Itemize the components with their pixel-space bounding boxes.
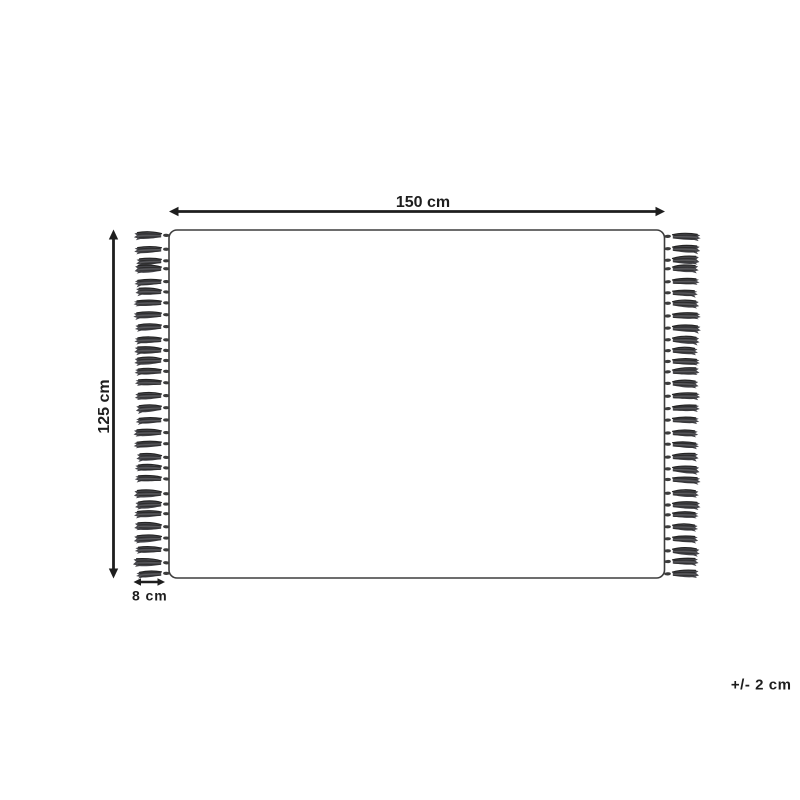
svg-text:+/- 2 cm: +/- 2 cm [731, 677, 792, 694]
svg-text:125 cm: 125 cm [96, 379, 113, 433]
svg-text:8 cm: 8 cm [132, 588, 168, 604]
svg-text:150 cm: 150 cm [396, 194, 450, 211]
